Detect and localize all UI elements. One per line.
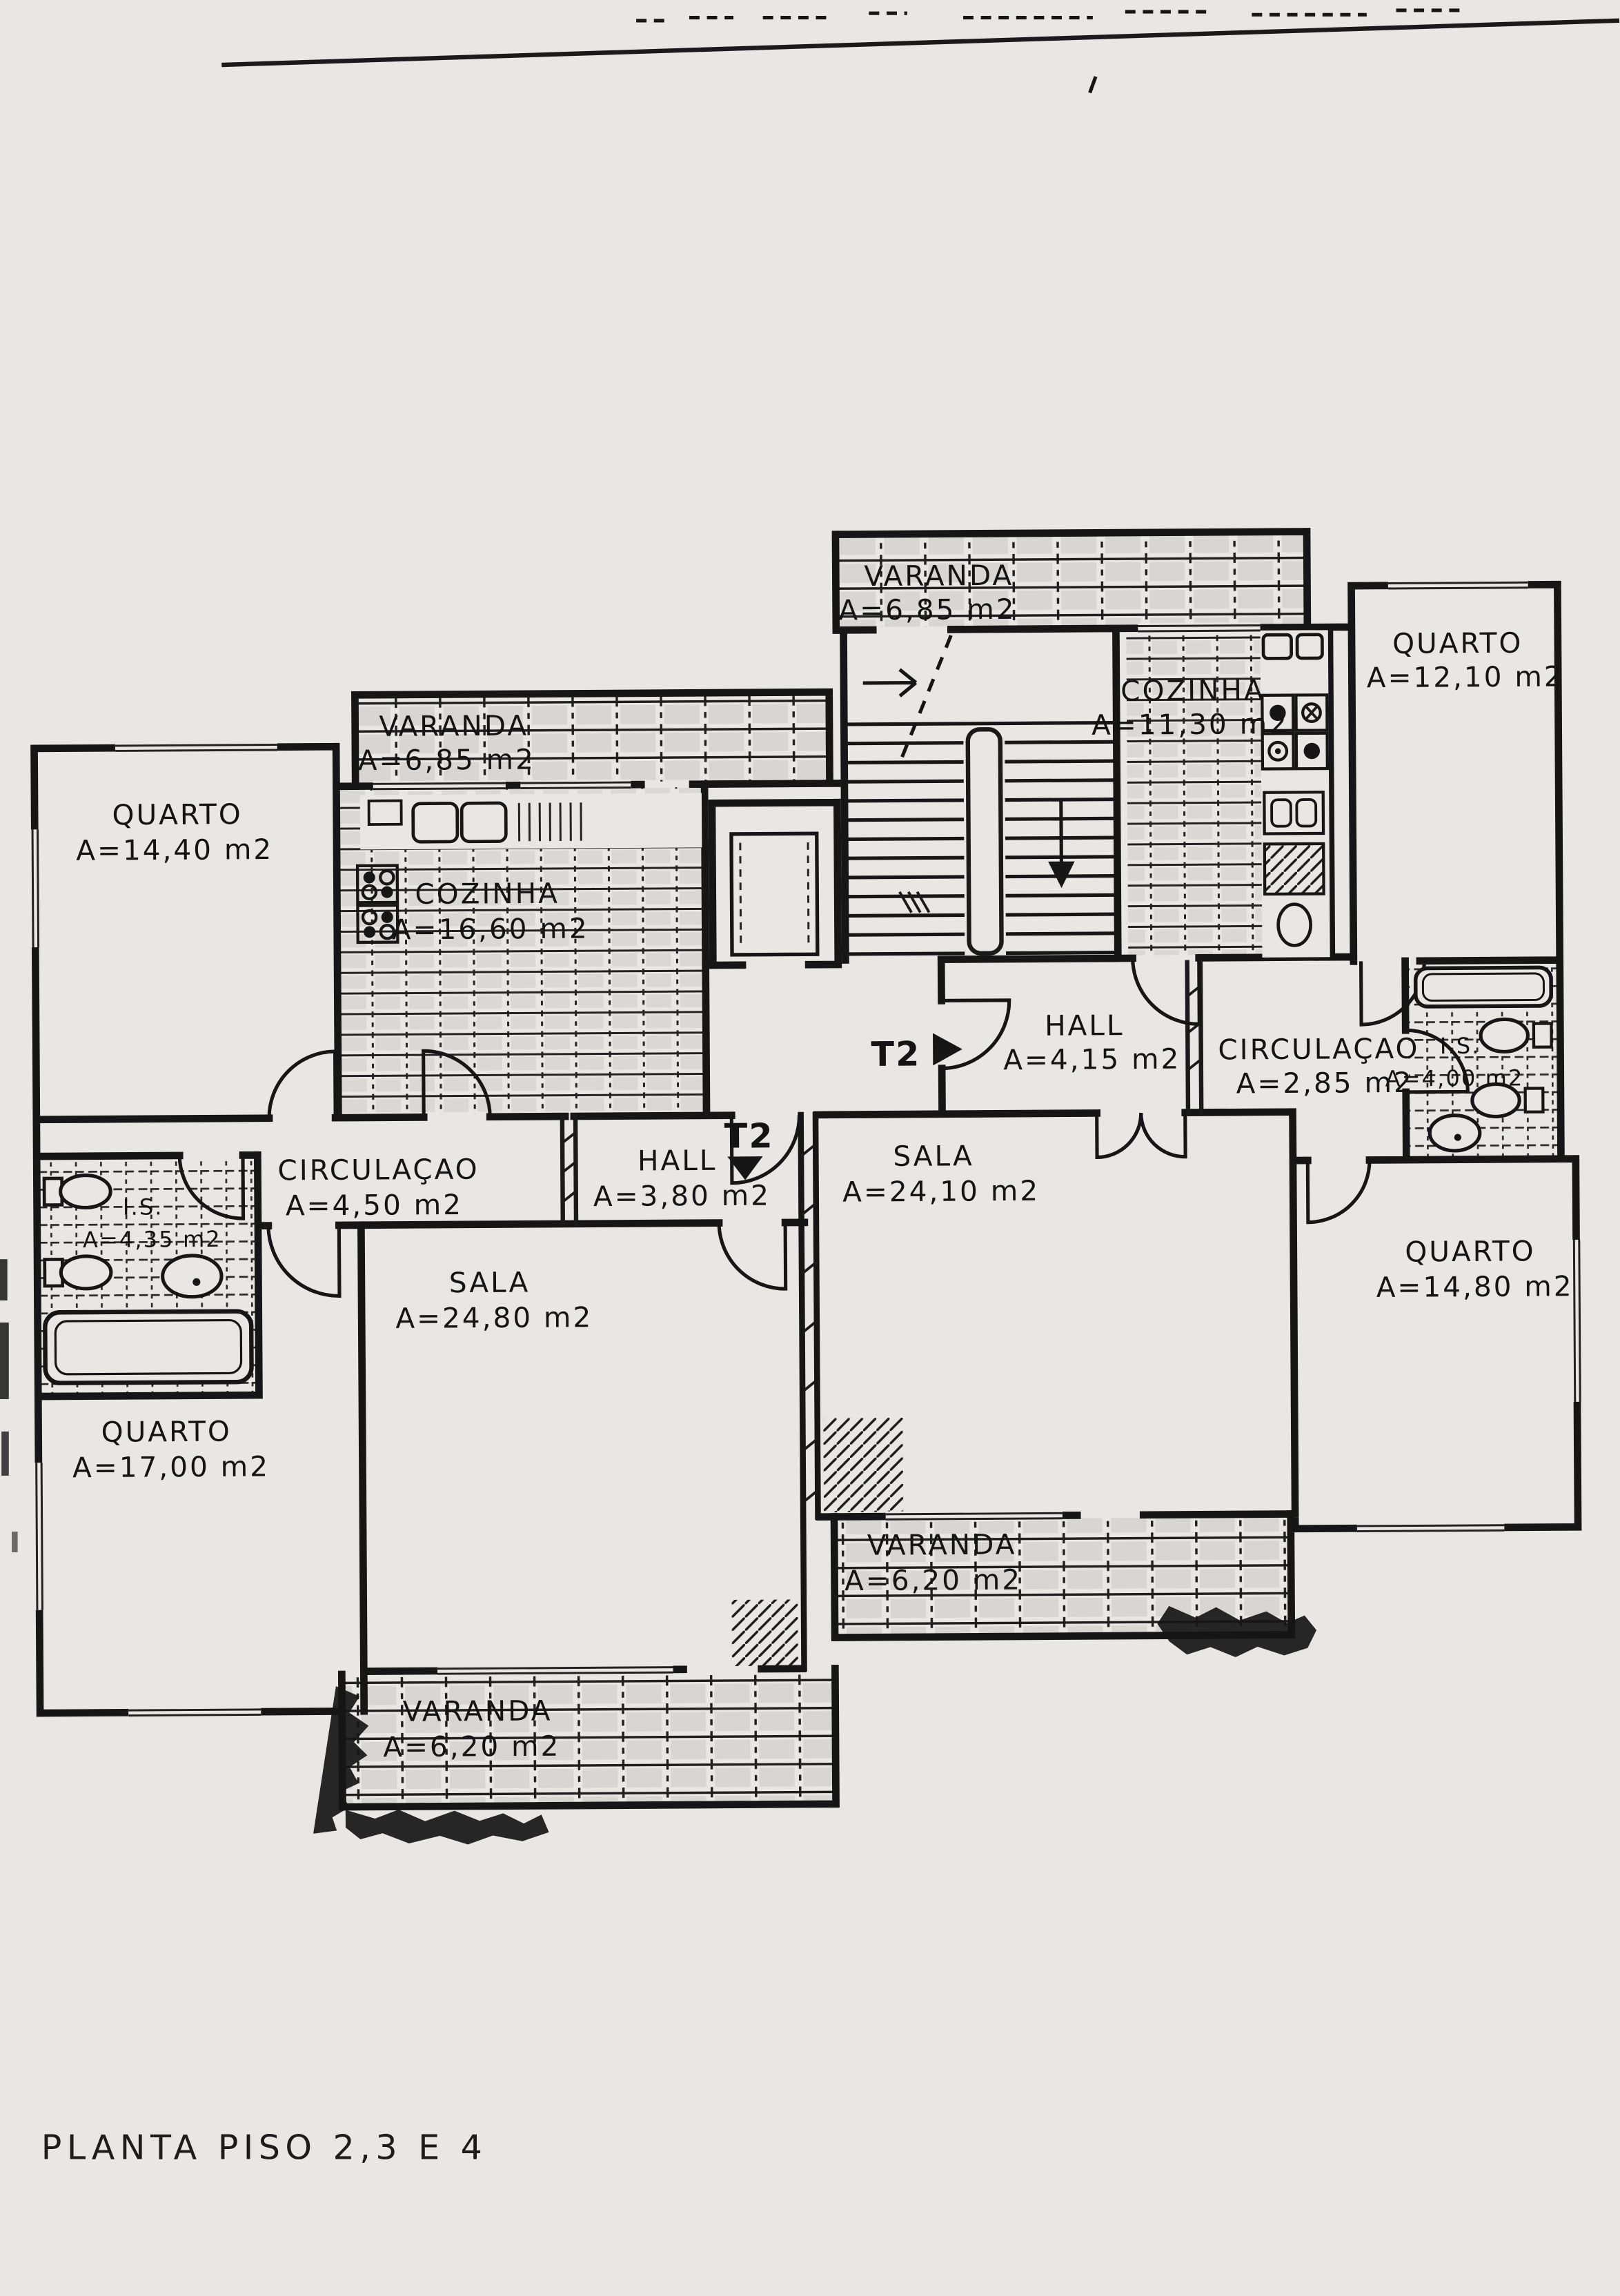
window-quarto-top-left-top (115, 742, 277, 753)
drawing-title: PLANTA PISO 2,3 E 4 (41, 2127, 488, 2167)
svg-text:A=14,40 m2: A=14,40 m2 (76, 833, 273, 867)
svg-text:A=4,00 m2: A=4,00 m2 (1385, 1065, 1524, 1091)
svg-text:A=3,80 m2: A=3,80 m2 (593, 1179, 771, 1214)
svg-text:CIRCULAÇAO: CIRCULAÇAO (277, 1153, 479, 1187)
room-label-cozinha-right: COZINHA A=11,30 m2 (1091, 673, 1289, 742)
corner-hatch-sala-right (823, 1418, 903, 1512)
kitchen-right-fixtures (1261, 630, 1330, 957)
svg-text:QUARTO: QUARTO (1392, 626, 1523, 660)
svg-text:A=17,00 m2: A=17,00 m2 (72, 1449, 270, 1484)
svg-text:A=6,20 m2: A=6,20 m2 (383, 1730, 560, 1764)
svg-text:A=24,10 m2: A=24,10 m2 (842, 1174, 1040, 1209)
window-quarto-bottom-right-bottom (1357, 1522, 1505, 1533)
svg-text:A=16,60 m2: A=16,60 m2 (392, 912, 589, 947)
window-quarto-top-right (1388, 580, 1528, 591)
window-quarto-bottom-left-bottom (128, 1707, 261, 1718)
svg-text:A=6,20 m2: A=6,20 m2 (844, 1563, 1022, 1598)
svg-text:A=24,80 m2: A=24,80 m2 (395, 1300, 593, 1335)
svg-text:HALL: HALL (1045, 1009, 1125, 1042)
window-sala-right (886, 1510, 1063, 1522)
washbasin-right (1430, 1115, 1480, 1151)
room-label-varanda-left: VARANDA A=6,85 m2 (357, 709, 535, 778)
svg-text:VARANDA: VARANDA (867, 1527, 1017, 1561)
window-kitchen-right (1138, 622, 1260, 633)
svg-text:A=6,85 m2: A=6,85 m2 (838, 593, 1016, 627)
svg-text:I.S.: I.S. (1440, 1033, 1481, 1059)
svg-text:I.S.: I.S. (123, 1194, 164, 1220)
room-label-varanda-top-center: VARANDA A=6,85 m2 (838, 559, 1016, 627)
svg-text:A=6,85 m2: A=6,85 m2 (358, 743, 535, 778)
svg-text:T2: T2 (871, 1034, 920, 1074)
floorplan-scan: VARANDA A=6,85 m2 QUARTO A=12,10 m2 COZI… (0, 0, 1620, 2296)
svg-text:T2: T2 (724, 1116, 774, 1156)
window-quarto-bottom-left-side (33, 1463, 44, 1610)
svg-text:VARANDA: VARANDA (403, 1694, 553, 1728)
svg-text:VARANDA: VARANDA (864, 559, 1014, 593)
window-quarto-top-left-side (30, 829, 41, 947)
svg-text:A=4,50 m2: A=4,50 m2 (286, 1188, 463, 1223)
svg-text:CIRCULAÇAO: CIRCULAÇAO (1218, 1032, 1419, 1067)
svg-text:A=12,10 m2: A=12,10 m2 (1367, 660, 1564, 694)
svg-text:SALA: SALA (893, 1139, 974, 1173)
toilet-right (1481, 1019, 1528, 1051)
scanned-page: VARANDA A=6,85 m2 QUARTO A=12,10 m2 COZI… (0, 0, 1620, 2296)
corner-hatch-sala-left (731, 1599, 798, 1666)
svg-text:A=11,30 m2: A=11,30 m2 (1091, 707, 1289, 742)
svg-text:QUARTO: QUARTO (101, 1415, 232, 1449)
window-sala-left (437, 1664, 673, 1676)
svg-text:QUARTO: QUARTO (1405, 1234, 1535, 1268)
washbasin (162, 1256, 221, 1297)
svg-text:SALA: SALA (449, 1265, 531, 1299)
svg-text:VARANDA: VARANDA (379, 709, 529, 743)
window-kitchen-left-1 (373, 780, 506, 791)
window-kitchen-left-2 (520, 780, 631, 791)
svg-text:COZINHA: COZINHA (415, 877, 560, 911)
svg-text:HALL: HALL (638, 1144, 718, 1178)
svg-text:A=4,35 m2: A=4,35 m2 (83, 1226, 221, 1253)
svg-text:QUARTO: QUARTO (112, 798, 242, 831)
svg-text:COZINHA: COZINHA (1120, 673, 1265, 707)
bidet-bowl (61, 1256, 111, 1289)
toilet-bowl (60, 1175, 110, 1207)
window-quarto-bottom-right-side (1571, 1240, 1582, 1402)
svg-text:A=14,80 m2: A=14,80 m2 (1376, 1269, 1574, 1304)
svg-text:A=4,15 m2: A=4,15 m2 (1003, 1042, 1181, 1077)
